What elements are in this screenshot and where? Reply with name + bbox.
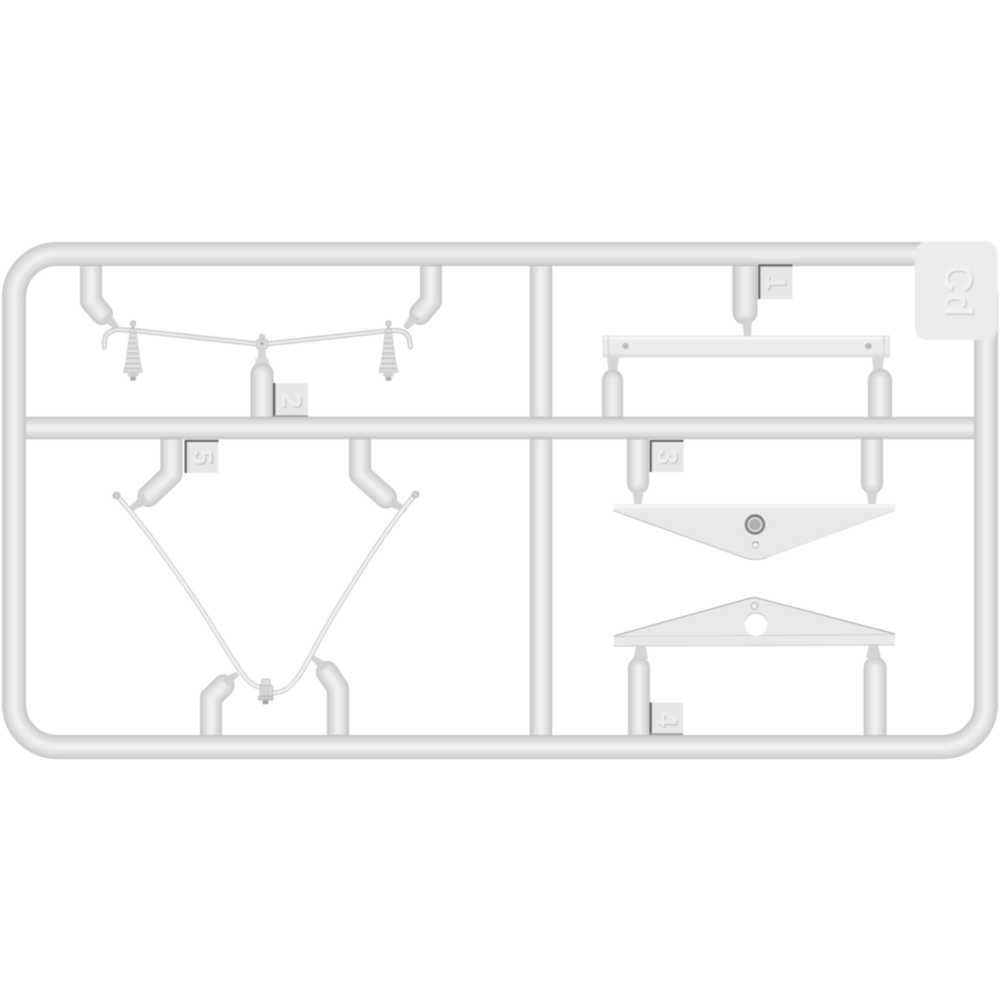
svg-text:2: 2 [276,393,307,408]
svg-text:4: 4 [652,712,683,728]
svg-text:Cd: Cd [935,263,979,316]
svg-text:5: 5 [187,449,218,464]
svg-text:3: 3 [652,449,683,464]
svg-text:1: 1 [761,275,792,290]
